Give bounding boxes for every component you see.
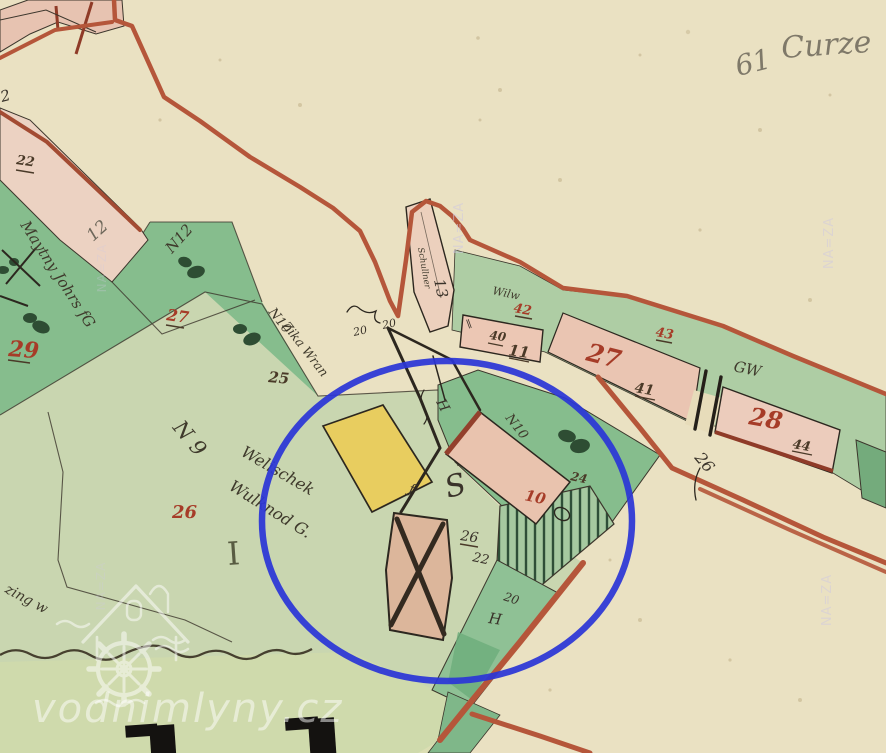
label-parcel-26: 26	[171, 502, 198, 523]
svg-text:NA=ZA: NA=ZA	[452, 202, 467, 254]
label-parcel-22: 22	[14, 153, 35, 171]
label-num-40: 40	[489, 328, 508, 344]
svg-text:NA=ZA: NA=ZA	[95, 244, 109, 293]
label-parcel-27: 27	[164, 305, 190, 327]
label-parcel-25: 25	[267, 368, 290, 388]
label-meadow-symbol: I	[226, 534, 241, 573]
watermark-site-text: vodnimlyny.cz	[32, 686, 343, 732]
svg-text:NA=ZA: NA=ZA	[94, 562, 108, 611]
svg-text:NA=ZA: NA=ZA	[822, 217, 837, 269]
label-house-28: 28	[746, 401, 785, 436]
logo-gear-spokes	[102, 647, 146, 691]
svg-text:NA=ZA: NA=ZA	[820, 574, 835, 626]
map-screenshot: 22 2 12 27 29 25 26 42 43 40 11 27 41 28…	[0, 0, 886, 753]
pencil-note-curze: Curze	[780, 25, 872, 66]
